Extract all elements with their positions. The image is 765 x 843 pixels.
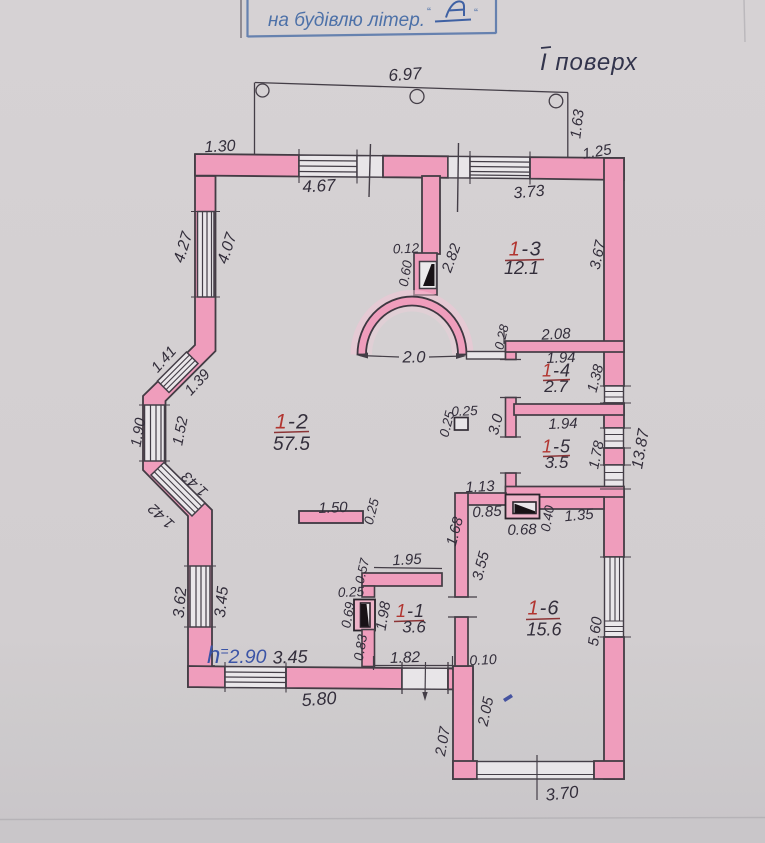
svg-text:1.95: 1.95: [392, 551, 423, 570]
svg-text:5.80: 5.80: [301, 688, 337, 710]
svg-text:1.35: 1.35: [564, 506, 595, 526]
svg-text:“: “: [474, 6, 478, 20]
svg-text:1.30: 1.30: [204, 138, 236, 157]
svg-text:57.5: 57.5: [273, 434, 310, 455]
svg-text:на будівлю літер.: на будівлю літер.: [268, 9, 425, 31]
svg-text:3.73: 3.73: [513, 183, 546, 203]
svg-text:1.94: 1.94: [548, 415, 578, 433]
svg-text:15.6: 15.6: [526, 620, 562, 640]
svg-text:2.08: 2.08: [540, 325, 572, 344]
svg-text:“: “: [427, 5, 431, 19]
svg-text:3.5: 3.5: [545, 453, 569, 472]
svg-text:3.45: 3.45: [272, 646, 309, 667]
svg-text:0.85: 0.85: [472, 503, 503, 522]
svg-text:1-6: 1-6: [528, 598, 560, 620]
svg-text:4.67: 4.67: [302, 176, 337, 197]
svg-text:1.13: 1.13: [465, 478, 496, 497]
svg-text:12.1: 12.1: [504, 258, 539, 278]
svg-text:3.70: 3.70: [545, 782, 580, 804]
svg-text:1.82: 1.82: [390, 649, 421, 667]
svg-text:h=2.90: h=2.90: [207, 642, 267, 669]
svg-text:2.7: 2.7: [543, 377, 568, 396]
svg-text:0.68: 0.68: [507, 521, 537, 539]
svg-text:1-2: 1-2: [275, 410, 309, 433]
svg-text:0.10: 0.10: [469, 651, 497, 668]
svg-text:0.25: 0.25: [338, 584, 365, 600]
svg-text:2.0: 2.0: [402, 349, 427, 367]
svg-text:1.63: 1.63: [567, 108, 588, 140]
svg-text:6.97: 6.97: [388, 64, 423, 85]
svg-text:3.6: 3.6: [402, 618, 426, 637]
svg-text:0.12: 0.12: [393, 241, 420, 257]
svg-text:3.45: 3.45: [212, 586, 232, 619]
svg-text:3.62: 3.62: [171, 586, 191, 619]
svg-text:1.50: 1.50: [318, 499, 348, 517]
svg-text:І поверх: І поверх: [540, 49, 638, 76]
